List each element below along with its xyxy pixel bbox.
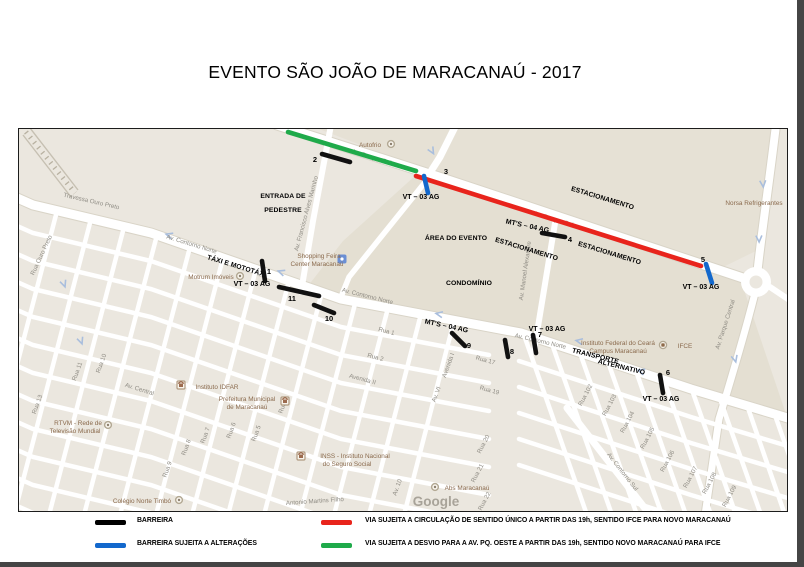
barrier-number: 11 (288, 294, 296, 303)
barrier-1 (262, 261, 265, 281)
legend-label: BARREIRA (137, 517, 173, 524)
street-label: Rua 17 (475, 355, 497, 367)
legend-label: VIA SUJEITA A CIRCULAÇÃO DE SENTIDO ÚNIC… (365, 517, 731, 524)
street-label: Av. Contorno Sul (605, 452, 639, 493)
event-annotation: PEDESTRE (264, 207, 302, 214)
barrier-number: 2 (313, 155, 317, 164)
barrier-label: VT – 03 AG (234, 281, 271, 288)
poi-label: Motrum Imóveis (188, 274, 233, 281)
poi-circle-dot-icon (390, 143, 392, 145)
star-icon (661, 343, 665, 347)
map-frame: Av. Parque SulAv. Parque SulAv. Contorno… (18, 128, 788, 512)
poi-circle-dot-icon (239, 275, 241, 277)
road (120, 247, 190, 511)
page-edge-right (797, 0, 804, 567)
street-label: Rua 102 (577, 383, 594, 407)
page-edge-bottom (0, 562, 804, 567)
building-icon (283, 400, 287, 404)
barrier-number: 10 (325, 314, 333, 323)
poi-label: Televisão Mundial (50, 428, 101, 435)
street-label: Rua 19 (479, 385, 501, 397)
poi-label: Center Maracanaú (291, 261, 344, 268)
road (770, 287, 787, 301)
legend-swatch (95, 543, 126, 548)
legend-label: BARREIRA SUJEITA A ALTERAÇÕES (137, 540, 257, 547)
poi-label: Instituto Federal do Ceará (581, 340, 655, 347)
barrier-number: 5 (701, 255, 705, 264)
street-label: Rua 103 (601, 393, 618, 417)
barrier-number: 1 (267, 267, 271, 276)
poi-label: INSS - Instituto Nacional (320, 453, 390, 460)
event-annotation: ENTRADA DE (260, 193, 306, 200)
building-icon (299, 455, 303, 459)
street-label: Rua 105 (639, 426, 656, 450)
poi-label: Norsa Refrigerantes (725, 200, 782, 207)
google-watermark: Google (413, 494, 460, 509)
poi-label: Colégio Norte Timbó (113, 498, 172, 505)
barrier-7 (533, 335, 536, 353)
barrier-label: VT – 03 AG (403, 194, 440, 201)
poi-label: de Maracanaú (227, 404, 268, 411)
oneway-arrow-icon (60, 280, 68, 288)
poi-label: Abs Maracanaú (445, 485, 490, 492)
document-page: EVENTO SÃO JOÃO DE MARACANAÚ - 2017 Av. … (0, 0, 804, 567)
oneway-arrow-icon (77, 337, 85, 345)
map-image: Av. Parque SulAv. Parque SulAv. Contorno… (19, 129, 787, 511)
building-icon (179, 384, 183, 388)
poi-label: do Seguro Social (323, 461, 372, 468)
barrier-number: 6 (666, 368, 670, 377)
legend-swatch (321, 543, 352, 548)
roundabout (741, 267, 771, 297)
legend-swatch (321, 520, 352, 525)
barrier-label: VT – 03 AG (643, 396, 680, 403)
poi-circle-dot-icon (178, 499, 180, 501)
barrier-9 (452, 333, 465, 346)
legend-label: VIA SUJEITA A DESVIO PARA A AV. PQ. OEST… (365, 540, 720, 547)
poi-circle-dot-icon (107, 424, 109, 426)
poi-label: Autofrio (359, 142, 381, 149)
street-label: Av. 10 (391, 478, 404, 497)
barrier-label: VT – 03 AG (529, 326, 566, 333)
poi-circle-dot-icon (434, 486, 436, 488)
legend-swatch (95, 520, 126, 525)
poi-label: IFCE (678, 343, 693, 350)
barrier-number: 8 (510, 347, 514, 356)
poi-label: RTVM - Rede de (54, 420, 102, 427)
barrier-label: VT – 03 AG (683, 284, 720, 291)
railway (23, 129, 78, 197)
poi-label: Instituto IDFAR (196, 384, 239, 391)
event-annotation: CONDOMÍNIO (446, 278, 492, 287)
barrier-8 (505, 340, 508, 357)
barrier-number: 3 (444, 167, 448, 176)
event-annotation: ÁREA DO EVENTO (425, 233, 487, 242)
poi-label: Prefeitura Municipal (219, 396, 275, 403)
poi-label: Shopping Feira (297, 253, 341, 260)
barrier-number: 9 (467, 341, 471, 350)
barrier-6 (660, 375, 663, 393)
page-title: EVENTO SÃO JOÃO DE MARACANAÚ - 2017 (0, 62, 790, 83)
